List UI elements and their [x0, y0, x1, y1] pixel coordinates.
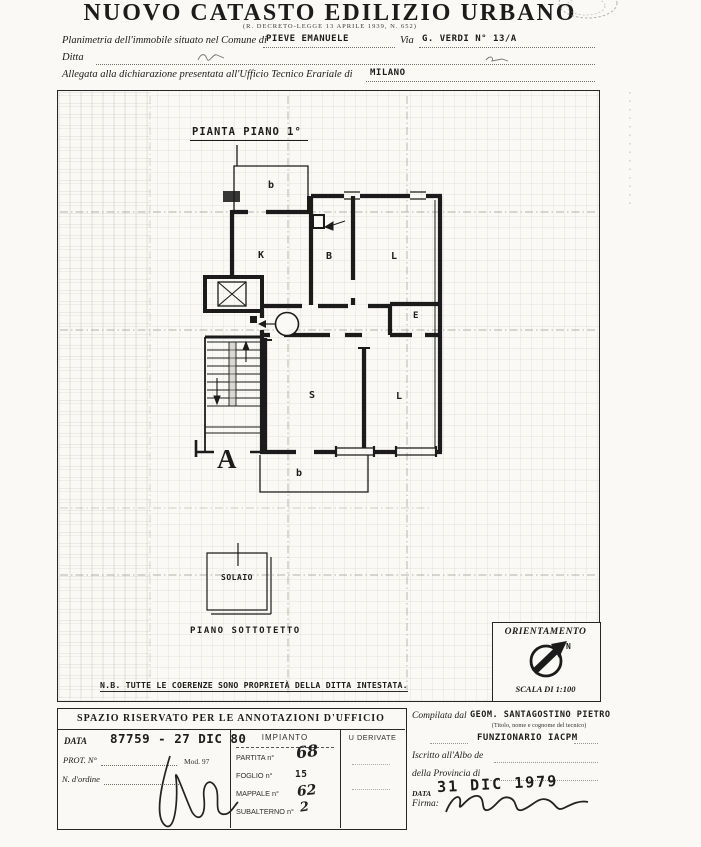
comune-value: PIEVE EMANUELE: [266, 34, 349, 44]
room-label-bedroom: S: [309, 390, 316, 401]
data-label: DATA: [64, 736, 87, 746]
dotted-line: [352, 763, 390, 765]
table-divider: [57, 729, 405, 730]
law-note: (R. DECRETO-LEGGE 13 APRILE 1939, N. 652…: [70, 23, 590, 30]
mod-label: Mod. 97: [184, 757, 209, 766]
room-label-closet: E: [413, 311, 419, 321]
scale-label: SCALA DI 1:100: [492, 684, 599, 694]
albo-label: Iscritto all'Albo de: [412, 751, 483, 761]
subalterno-value: 2: [299, 799, 310, 815]
compiler-role: FUNZIONARIO IACPM: [477, 733, 578, 743]
solaio-label: SOLAIO: [208, 573, 266, 582]
partita-label: PARTITA n°: [236, 753, 274, 762]
table-divider: [340, 729, 341, 828]
graph-grid-band: [59, 92, 151, 698]
cadastral-document-page: NUOVO CATASTO EDILIZIO URBANO (R. DECRET…: [0, 0, 701, 847]
compilata-label: Compilata dal: [412, 711, 467, 721]
subalterno-label: SUBALTERNO n°: [236, 807, 294, 816]
room-label-balcony-top: b: [268, 180, 275, 191]
sottotetto-label: PIANO SOTTOTETTO: [190, 626, 301, 636]
room-label-kitchen: K: [258, 250, 265, 261]
office-table: [57, 708, 407, 830]
note-text: N.B. TUTTE LE COERENZE SONO PROPRIETÀ DE…: [100, 680, 408, 692]
pencil-marks: [198, 55, 508, 61]
room-label-balcony-bottom: b: [296, 468, 303, 479]
north-label: N: [566, 642, 571, 651]
dotted-line: [101, 764, 177, 766]
unit-number: 1: [279, 317, 295, 331]
ufficio-label: Allegata alla dichiarazione presentata a…: [62, 69, 352, 80]
dash-divider: [236, 747, 334, 748]
office-table-header: SPAZIO RISERVATO PER LE ANNOTAZIONI D'UF…: [57, 713, 405, 724]
room-label-living-top: L: [391, 251, 398, 262]
comune-label: Planimetria dell'immobile situato nel Co…: [62, 35, 267, 46]
via-label: Via: [400, 35, 414, 46]
room-label-bathroom: B: [326, 251, 333, 262]
protocol-stamp: 87759 - 27 DIC 80: [110, 731, 246, 746]
dotted-line: [263, 46, 395, 48]
via-value: G. VERDI N° 13/A: [422, 34, 517, 44]
orientation-title: ORIENTAMENTO: [492, 627, 599, 637]
ditta-label: Ditta: [62, 52, 84, 63]
foglio-value: 15: [295, 769, 307, 780]
prot-label: PROT. N°: [63, 755, 97, 765]
mappale-label: MAPPALE n°: [236, 789, 279, 798]
compiler-name-note: (Titolo, nome e cognome del tecnico): [468, 722, 610, 729]
dotted-line: [419, 46, 595, 48]
impianto-header: IMPIANTO: [230, 733, 340, 742]
partita-value: 68: [295, 741, 319, 763]
dotted-line: [104, 783, 179, 785]
compiler-name: GEOM. SANTAGOSTINO PIETRO: [470, 710, 610, 720]
foglio-label: FOGLIO n°: [236, 771, 273, 780]
dotted-line: [366, 80, 595, 82]
dotted-line: [494, 761, 598, 763]
derivate-header: U DERIVATE: [340, 733, 405, 742]
firma-label: Firma:: [412, 799, 439, 809]
room-label-living-bottom: L: [396, 391, 403, 402]
mappale-value: 62: [296, 782, 317, 800]
dotted-line: [352, 788, 390, 790]
stairwell-label: A: [217, 444, 237, 475]
dotted-line: [430, 742, 468, 744]
dotted-line: [96, 63, 595, 65]
dotted-line: [574, 742, 598, 744]
plan-title: PIANTA PIANO 1°: [190, 126, 308, 141]
compiler-data-label: DATA: [412, 789, 431, 798]
ordine-label: N. d'ordine: [62, 774, 100, 784]
ufficio-value: MILANO: [370, 68, 406, 78]
